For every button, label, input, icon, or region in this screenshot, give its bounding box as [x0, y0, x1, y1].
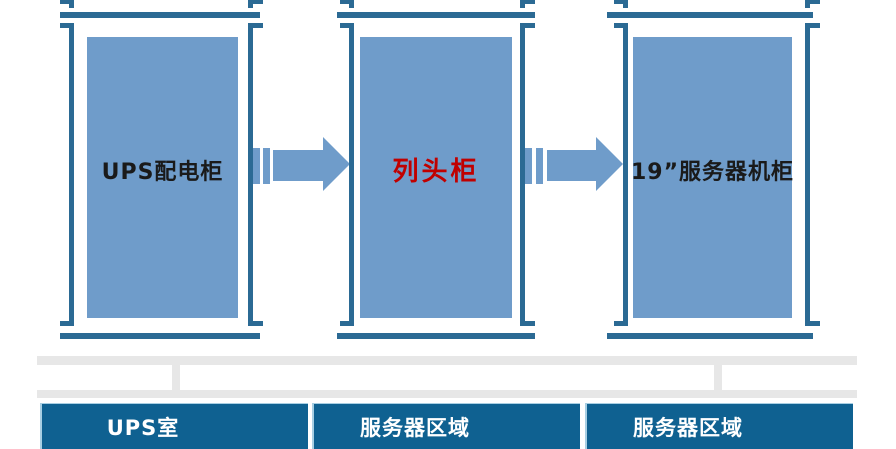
cabinet-bottom-rail	[60, 333, 260, 339]
cabinet-top-rail	[337, 12, 535, 18]
bracket-tip	[340, 23, 354, 28]
crop-mark	[520, 0, 535, 4]
arrow-tail-segment	[525, 148, 532, 184]
cabinet-row-head: 列头柜	[337, 12, 535, 339]
cabinet-bottom-rail	[337, 333, 535, 339]
cabinet-bottom-rail	[607, 333, 813, 339]
arrow-tail-segment	[263, 148, 270, 184]
bracket-tip	[614, 321, 628, 326]
arrow-shaft	[273, 150, 323, 181]
crop-mark	[805, 0, 820, 4]
cabinet-ups-distribution: UPS配电柜	[60, 12, 260, 339]
cabinet-server-rack: 19”服务器机柜	[607, 12, 813, 339]
bracket-tip	[614, 23, 628, 28]
zone-box-ups-room: UPS室	[40, 403, 308, 449]
zone-box-server-area-2: 服务器区域	[585, 403, 853, 449]
zone-label: 服务器区域	[633, 412, 807, 442]
cabinet-label: UPS配电柜	[102, 154, 224, 202]
floor-connector-stub-right	[714, 365, 722, 390]
cabinet-body: UPS配电柜	[87, 37, 238, 318]
crop-mark	[614, 0, 628, 4]
zone-label: UPS室	[107, 412, 244, 442]
bracket-tip	[520, 23, 535, 28]
cabinet-top-rail	[607, 12, 813, 18]
cabinet-left-bracket	[623, 23, 628, 326]
bracket-tip	[248, 23, 263, 28]
zone-label: 服务器区域	[360, 412, 534, 442]
bracket-tip	[805, 321, 820, 326]
cabinet-body: 列头柜	[360, 37, 512, 318]
arrow-tail-segment	[536, 148, 543, 184]
cabinet-right-bracket	[805, 23, 810, 326]
arrow-shaft	[547, 150, 596, 181]
cabinet-label: 19”服务器机柜	[631, 154, 794, 202]
bracket-tip	[248, 321, 263, 326]
floor-connector-stub-left	[172, 365, 180, 390]
bracket-tip	[805, 23, 820, 28]
cabinet-body: 19”服务器机柜	[633, 37, 792, 318]
crop-mark	[248, 0, 263, 4]
bracket-tip	[60, 321, 74, 326]
cabinet-top-rail	[60, 12, 260, 18]
cabinet-left-bracket	[349, 23, 354, 326]
arrow-tail-segment	[253, 148, 260, 184]
cabinet-label: 列头柜	[392, 151, 479, 204]
floor-connector-bar-top	[37, 356, 857, 365]
bracket-tip	[520, 321, 535, 326]
cabinet-left-bracket	[69, 23, 74, 326]
crop-mark	[340, 0, 354, 4]
floor-connector-bar-bottom	[37, 390, 857, 398]
bracket-tip	[340, 321, 354, 326]
zone-box-server-area-1: 服务器区域	[312, 403, 580, 449]
diagram-canvas: UPS配电柜 列头柜	[0, 0, 896, 449]
bracket-tip	[60, 23, 74, 28]
crop-mark	[60, 0, 74, 4]
